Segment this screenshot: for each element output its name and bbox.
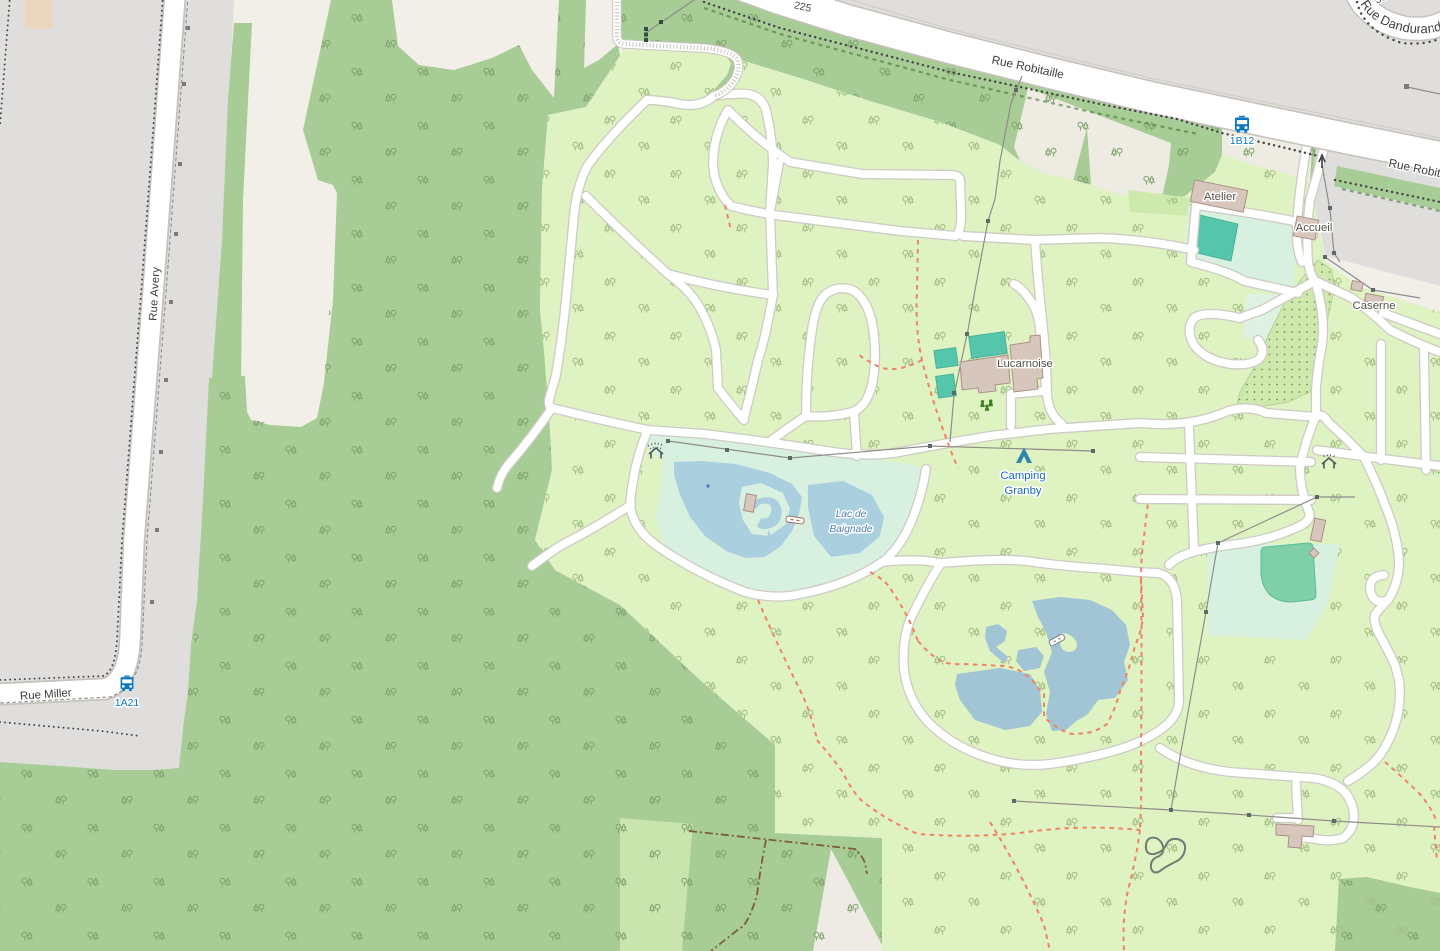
svg-text:Lac de: Lac de [836, 509, 867, 520]
svg-text:Baignade: Baignade [829, 524, 872, 535]
svg-text:Lucarnoise: Lucarnoise [997, 358, 1053, 370]
svg-text:Atelier: Atelier [1204, 191, 1236, 203]
svg-text:Accueil: Accueil [1296, 222, 1333, 234]
svg-text:Caserne: Caserne [1352, 300, 1395, 312]
svg-text:Camping: Camping [1000, 470, 1045, 482]
svg-text:1A21: 1A21 [115, 697, 140, 709]
svg-text:1B12: 1B12 [1230, 135, 1255, 147]
svg-text:Granby: Granby [1004, 485, 1041, 497]
